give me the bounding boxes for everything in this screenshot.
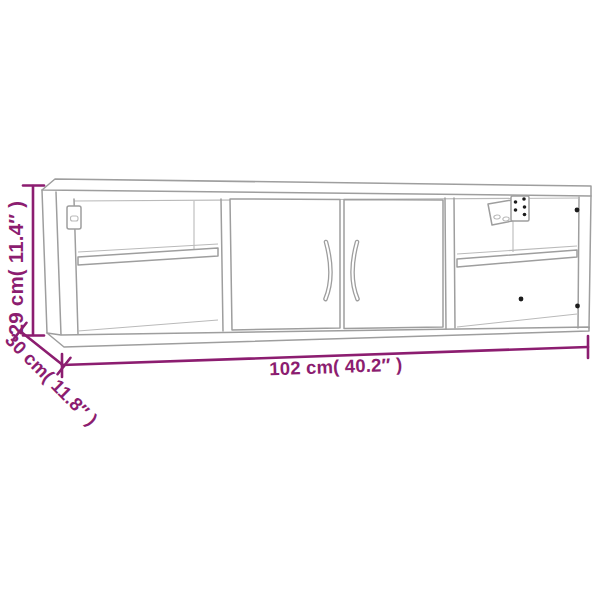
left-compartment-floor [78, 320, 218, 331]
height-dimension-label: 29 cm( 11.4″ ) [4, 201, 27, 336]
left-compartment [67, 201, 218, 331]
cabinet-dimension-diagram: 29 cm( 11.4″ ) 30 cm( 11.8″ ) 102 cm( 40… [0, 0, 600, 600]
shelf-pin [575, 208, 580, 213]
product-image-canvas: 29 cm( 11.4″ ) 30 cm( 11.8″ ) 102 cm( 40… [0, 0, 600, 600]
shelf-pin [575, 304, 580, 309]
right-compartment-floor [457, 314, 577, 327]
cabinet-doors [230, 199, 443, 330]
cabinet-drawing [42, 179, 591, 347]
shelf-pin [519, 297, 524, 302]
cabinet-top-face [42, 179, 591, 196]
right-compartment [457, 196, 580, 327]
cabinet-bottom-panel [47, 327, 589, 347]
wall-mount-bracket-right [488, 196, 529, 225]
right-door [344, 200, 443, 329]
cabinet-right-side [578, 196, 591, 328]
right-compartment-shelf [457, 246, 577, 267]
cabinet-left-side [42, 190, 61, 335]
width-dimension-label: 102 cm( 40.2″ ) [269, 354, 403, 380]
height-dimension: 29 cm( 11.4″ ) [4, 186, 44, 336]
left-door [230, 199, 340, 330]
left-compartment-shelf [78, 244, 218, 265]
wall-mount-bracket-left [67, 206, 81, 229]
